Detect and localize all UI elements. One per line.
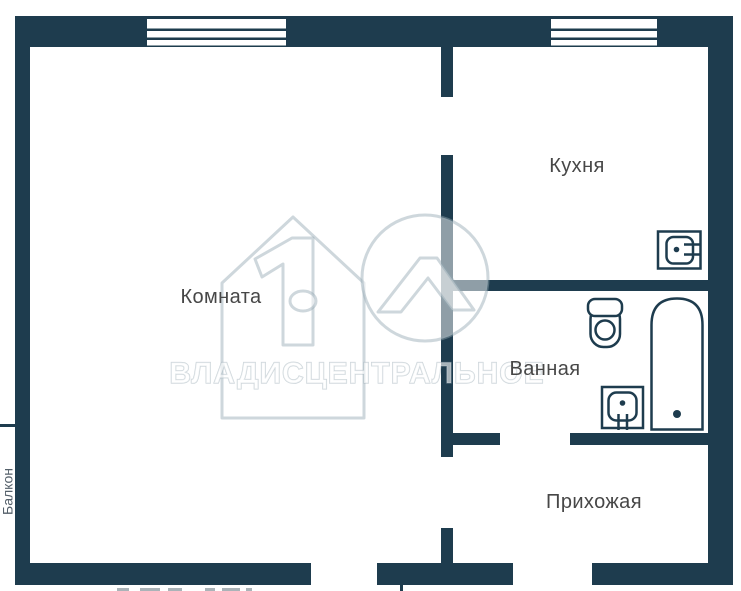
room-label-living-room: Комната [151, 286, 291, 309]
room-label-hallway: Прихожая [524, 491, 664, 514]
room-label-kitchen: Кухня [507, 155, 647, 178]
room-label-bathroom: Ванная [475, 358, 615, 381]
room-label-balcony: Балкон [0, 462, 17, 522]
watermark-keyhole [290, 291, 316, 311]
floor-plan-canvas: ВЛАДИСЦЕНТРАЛЬНОЕ Комната Кухня Ванная П… [0, 0, 741, 591]
